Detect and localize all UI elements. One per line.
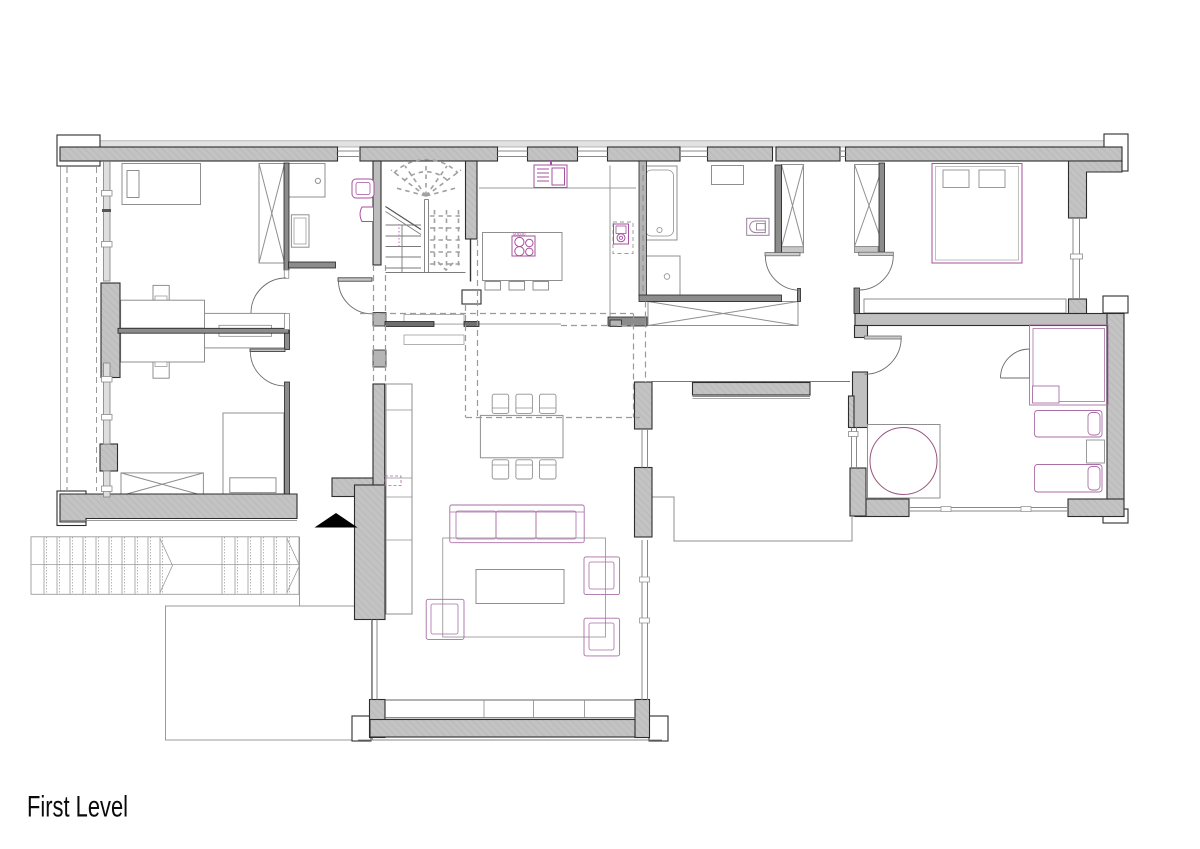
svg-text:First Level: First Level [27, 791, 128, 824]
svg-text:90600: 90600 [513, 232, 526, 237]
